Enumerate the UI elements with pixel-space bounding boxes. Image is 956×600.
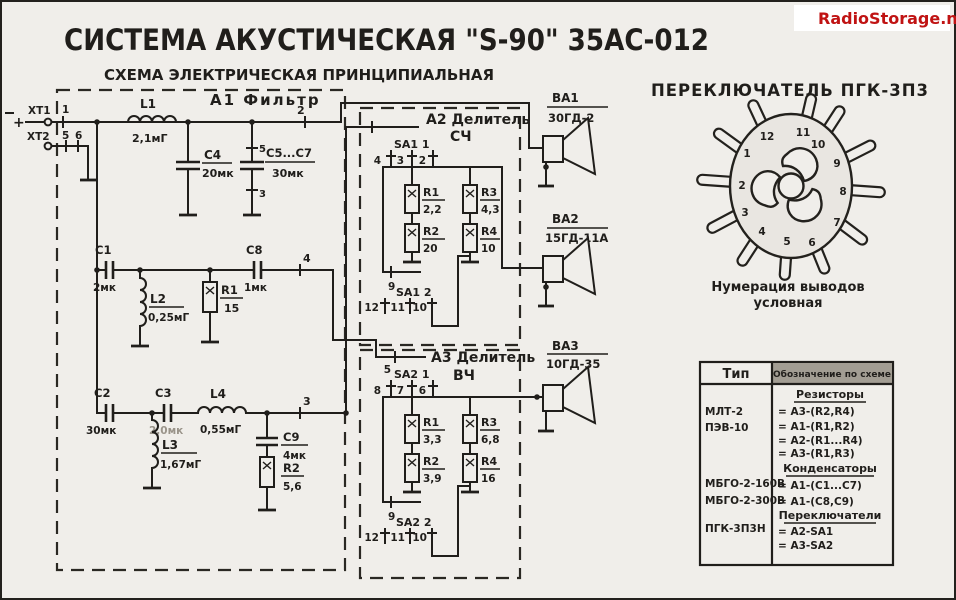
sa1-pin10-label: 10	[412, 302, 427, 314]
junction-dot	[343, 410, 349, 416]
c2-name: С2	[94, 386, 110, 400]
c2-value: 30мк	[86, 425, 116, 437]
capacitors-item-1: = А1-(С1...С7)	[778, 480, 862, 492]
resistor-a3-r3	[463, 415, 477, 443]
a2-r4-name: R4	[481, 225, 497, 238]
a1-r2-name: R2	[283, 461, 300, 475]
block-a3-label: А3 Делитель	[431, 350, 535, 366]
a2-r2-name: R2	[423, 225, 439, 238]
capacitors-item-2: = А1-(С8,С9)	[778, 496, 854, 508]
speaker-polarity-dot	[534, 394, 540, 400]
resistor-a2-r3	[463, 185, 477, 213]
resistor-a1-r2	[260, 457, 274, 487]
ba3-ref: ВА3	[552, 339, 579, 353]
switch-pin-7: 7	[833, 217, 840, 229]
table-col1-header: Тип	[723, 367, 750, 382]
node3-label: 3	[303, 395, 311, 408]
a3-pin9-label: 9	[388, 511, 395, 523]
ba3-type: 10ГД-35	[546, 357, 600, 371]
switch-pin-12: 12	[760, 131, 775, 143]
switch-pin-9: 9	[833, 158, 840, 170]
node2-label: 2	[297, 104, 305, 117]
speaker-polarity-dot	[543, 164, 549, 170]
c5c7-value: 30мк	[272, 167, 304, 180]
speaker-ba2-coil	[543, 256, 563, 282]
switches-item-2: = А3-SA2	[778, 540, 833, 552]
c5c7-name: С5...С7	[266, 146, 312, 160]
sa1-pin12-label: 12	[364, 302, 379, 314]
l4-value: 0,55мГ	[200, 424, 241, 436]
a2-r3-name: R3	[481, 186, 497, 199]
a3-r1-value: 3,3	[423, 434, 442, 446]
rotor-hub	[779, 174, 804, 199]
a3-r3-name: R3	[481, 416, 497, 429]
sa2-section1-label: SA2 1	[394, 368, 430, 381]
l2-value: 0,25мГ	[148, 312, 189, 324]
switch-pin-3: 3	[741, 207, 748, 219]
junction-dot	[94, 119, 100, 125]
sa2-pin10-label: 10	[412, 532, 427, 544]
sa1-pin2-label: 2	[419, 155, 426, 167]
section-switches-title: Переключатели	[779, 509, 882, 522]
l1-name: L1	[140, 97, 156, 111]
ba1-ref: ВА1	[552, 91, 579, 105]
a3-r2-value: 3,9	[423, 473, 442, 485]
sa2-pin11-label: 11	[390, 532, 405, 544]
resistor-a3-r2	[405, 454, 419, 482]
section-resistors-title: Резисторы	[796, 388, 864, 401]
c4-name: С4	[204, 148, 221, 162]
sa2-pin6-label: 6	[419, 385, 426, 397]
a1-r2-value: 5,6	[283, 481, 302, 493]
switch-pin-10: 10	[811, 139, 826, 151]
type-mbgo300: МБГО-2-300В	[705, 495, 785, 507]
node4-label: 4	[303, 252, 311, 265]
terminal-xt2-label: XT2	[27, 131, 50, 143]
switch-pin-4: 4	[758, 226, 765, 238]
type-mbgo160: МБГО-2-160В	[705, 478, 785, 490]
c8-value: 1мк	[244, 282, 267, 294]
c8-name: С8	[246, 243, 262, 257]
a3-r3-value: 6,8	[481, 434, 500, 446]
type-pgk3p3n: ПГК-3П3Н	[705, 523, 766, 535]
sa1-section2-label: SA1 2	[396, 286, 432, 299]
resistor-a2-r4	[463, 224, 477, 252]
switch-pin-6: 6	[808, 237, 815, 249]
l1-value: 2,1мГ	[132, 132, 168, 145]
sa2-pin12-label: 12	[364, 532, 379, 544]
a2-r1-name: R1	[423, 186, 439, 199]
switches-item-1: = А2-SA1	[778, 526, 833, 538]
resistor-a1-r1	[203, 282, 217, 312]
a2-pin9-label: 9	[388, 281, 395, 293]
a3-r1-name: R1	[423, 416, 439, 429]
sa1-pin3-label: 3	[397, 155, 404, 167]
a1-r1-name: R1	[221, 283, 238, 297]
type-pev10: ПЭВ-10	[705, 422, 748, 434]
speaker-ba1-coil	[543, 136, 563, 162]
resistor-a2-r1	[405, 185, 419, 213]
section-capacitors-title: Конденсаторы	[783, 462, 877, 475]
watermark-text: RadioStorage.net	[818, 9, 956, 28]
switch-pin-5: 5	[783, 236, 790, 248]
c1-name: С1	[95, 243, 111, 257]
a1-r1-value: 15	[224, 302, 239, 315]
sa2-pin7-label: 7	[397, 385, 404, 397]
a2-r3-value: 4,3	[481, 204, 500, 216]
switch-pin-1: 1	[743, 148, 750, 160]
switch-pin-2: 2	[738, 180, 745, 192]
a3-r4-name: R4	[481, 455, 497, 468]
block-a3-sublabel: ВЧ	[453, 368, 475, 384]
resistor-a3-r4	[463, 454, 477, 482]
a3-r4-value: 16	[481, 473, 496, 485]
a3-r2-name: R2	[423, 455, 439, 468]
resistors-item-2: = А1-(R1,R2)	[778, 421, 855, 433]
xt1-pin1-label: 1	[62, 104, 69, 116]
sa1-pin4-label: 4	[374, 155, 381, 167]
rotary-caption-line2: условная	[754, 296, 823, 311]
sa1-pin11-label: 11	[390, 302, 405, 314]
page-subtitle: СХЕМА ЭЛЕКТРИЧЕСКАЯ ПРИНЦИПИАЛЬНАЯ	[104, 66, 494, 84]
c5c7-pin5-label: 5	[259, 144, 266, 155]
resistor-a3-r1	[405, 415, 419, 443]
type-mlt2: МЛТ-2	[705, 406, 743, 418]
c1-value: 2мк	[93, 282, 116, 294]
schematic-canvas: СИСТЕМА АКУСТИЧЕСКАЯ "S-90" 35АС-012 СХЕ…	[0, 0, 956, 600]
terminal-xt1-label: XT1	[28, 105, 51, 117]
rotary-caption-line1: Нумерация выводов	[711, 280, 864, 295]
a2-r2-value: 20	[423, 243, 438, 255]
plus-mark: +	[13, 115, 25, 131]
c9-name: С9	[283, 430, 299, 444]
a2-r4-value: 10	[481, 243, 496, 255]
page-title: СИСТЕМА АКУСТИЧЕСКАЯ "S-90" 35АС-012	[64, 23, 709, 57]
resistors-item-3: = А2-(R1...R4)	[778, 435, 863, 447]
sa2-pin8-label: 8	[374, 385, 381, 397]
sa2-section2-label: SA2 2	[396, 516, 432, 529]
resistors-item-1: = А3-(R2,R4)	[778, 406, 855, 418]
a2-r1-value: 2,2	[423, 204, 442, 216]
l3-value: 1,67мГ	[160, 459, 201, 471]
l2-name: L2	[150, 292, 166, 306]
speaker-polarity-dot	[543, 284, 549, 290]
block-a2-label: А2 Делитель	[426, 112, 530, 128]
c5c7-pin3-label: 3	[259, 189, 266, 200]
c3-name: С3	[155, 386, 171, 400]
block-a2-sublabel: СЧ	[450, 129, 472, 145]
table-col2-header: Обозначение по схеме	[773, 369, 891, 380]
rotary-switch-title: ПЕРЕКЛЮЧАТЕЛЬ ПГК-3П3	[651, 81, 929, 100]
schematic-page: СИСТЕМА АКУСТИЧЕСКАЯ "S-90" 35АС-012 СХЕ…	[0, 0, 956, 600]
resistor-a2-r2	[405, 224, 419, 252]
speaker-ba3-coil	[543, 385, 563, 411]
switch-pin-11: 11	[796, 127, 811, 139]
ba2-ref: ВА2	[552, 212, 579, 226]
c4-value: 20мк	[202, 167, 234, 180]
l3-name: L3	[162, 438, 178, 452]
switch-pin-8: 8	[839, 186, 846, 198]
l4-name: L4	[210, 387, 226, 401]
a3-pin5-label: 5	[384, 364, 391, 376]
resistors-item-4: = А3-(R1,R3)	[778, 448, 855, 460]
ba2-type: 15ГД-11А	[545, 231, 608, 245]
sa1-section1-label: SA1 1	[394, 138, 430, 151]
